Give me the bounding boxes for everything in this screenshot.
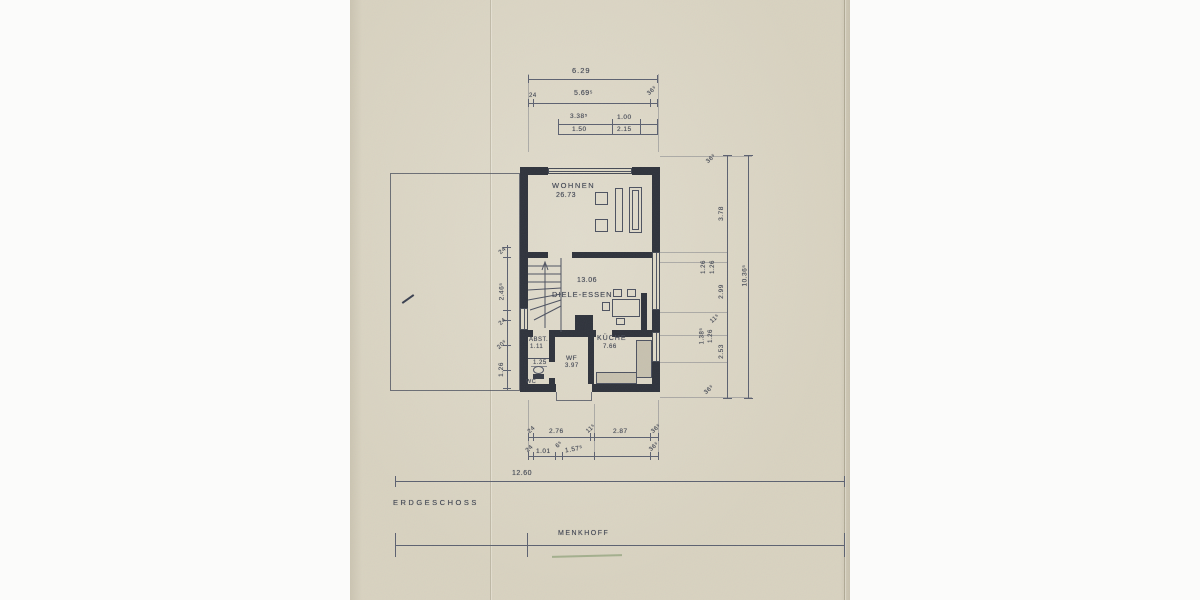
dim-right-299: 2.99 <box>718 284 725 299</box>
dim-right-total: 10.36⁵ <box>741 265 748 287</box>
scan-paper: WOHNEN 26.73 13.06 DIELE-ESSEN ABST. 1.1… <box>350 0 850 600</box>
dim-top-365: 36⁵ <box>646 85 658 97</box>
floor-title: ERDGESCHOSS <box>393 498 479 507</box>
dim-top-total: 6.29 <box>572 66 591 75</box>
paper-edge-line <box>844 0 845 600</box>
dim-top-150: 1.50 <box>572 126 587 133</box>
dim-right-253: 2.53 <box>718 344 725 359</box>
area-abst: 1.11 <box>530 344 543 350</box>
dim-abst-inner <box>531 366 547 367</box>
wall-bottom-left <box>520 384 556 392</box>
kitchen-counter-right <box>636 340 652 378</box>
scanned-floorplan-page: WOHNEN 26.73 13.06 DIELE-ESSEN ABST. 1.1… <box>0 0 1200 600</box>
wall-bottom-right <box>592 384 660 392</box>
wall-interior-b <box>572 252 652 258</box>
dim-right-365-bot: 36⁵ <box>703 384 715 396</box>
dim-overall-width: 12.60 <box>512 470 532 477</box>
dim-top-3385: 3.38⁵ <box>570 113 588 120</box>
dim-line-top-row2 <box>528 103 658 104</box>
dining-chair-2 <box>627 289 636 297</box>
dim-right-115: 11⁵ <box>709 313 721 324</box>
window-kitchen <box>652 332 660 362</box>
dim-line-bottom2 <box>528 456 658 457</box>
dim-top-24: 24 <box>529 93 537 99</box>
dim-right-126a: 1.26 <box>701 260 707 274</box>
entrance-porch <box>556 392 592 401</box>
armchair-1 <box>595 192 608 205</box>
dim-left-2465: 2.46⁵ <box>498 283 505 301</box>
area-wf: 3.97 <box>565 363 579 369</box>
green-underline <box>552 554 622 558</box>
wall-left-upper <box>520 167 528 308</box>
dining-table <box>612 299 640 317</box>
room-label-diele-essen: DIELE-ESSEN <box>552 290 613 299</box>
dim-top-5695: 5.69⁵ <box>574 90 593 97</box>
room-label-wc: WC <box>526 379 536 385</box>
chimney-block <box>575 315 593 332</box>
dining-chair-1 <box>613 289 622 297</box>
dim-line-top-row3 <box>558 124 658 125</box>
door-left <box>520 308 528 330</box>
kitchen-counter-bottom <box>596 372 637 384</box>
dining-chair-4 <box>616 318 625 325</box>
divider-abst-wc <box>528 358 549 359</box>
area-diele: 13.06 <box>577 277 597 284</box>
dim-bot1-287: 2.87 <box>613 428 628 435</box>
dining-chair-3 <box>602 302 610 311</box>
dim-right-1385: 1.38⁵ <box>699 328 705 345</box>
wall-right-mid <box>652 310 660 332</box>
wall-kueche-diele <box>641 293 647 330</box>
dim-right-378: 3.78 <box>718 206 725 221</box>
toilet-bowl <box>533 366 544 374</box>
coffee-table <box>615 188 623 232</box>
dim-line-bottom1 <box>528 437 658 438</box>
wall-wf-kueche <box>588 337 594 384</box>
dim-bot1-365: 36⁵ <box>650 423 662 435</box>
dim-line-top-total <box>528 79 658 80</box>
dim-left-126: 1.26 <box>498 362 505 377</box>
sofa <box>629 187 642 233</box>
wall-abst-wf2 <box>549 378 555 384</box>
room-label-wohnen: WOHNEN <box>552 181 595 190</box>
area-kueche: 7.66 <box>603 344 617 350</box>
dim-bot2-65: 6⁵ <box>555 440 564 449</box>
area-wohnen: 26.73 <box>556 192 576 199</box>
dim-right-126c: 1.26 <box>708 329 714 343</box>
armchair-2 <box>595 219 608 232</box>
dim-top-215: 2.15 <box>617 126 632 133</box>
room-label-abst: ABST. <box>529 337 548 343</box>
architect-name: MENKHOFF <box>558 530 609 537</box>
wall-right-upper <box>652 167 660 252</box>
dim-right-126b: 1.26 <box>710 260 716 274</box>
room-label-wf: WF <box>566 355 577 362</box>
dim-bot1-115: 11⁵ <box>585 423 597 434</box>
wall-abst-wf <box>549 337 555 362</box>
dim-bot1-276: 2.76 <box>549 428 564 435</box>
room-label-kueche: KÜCHE <box>597 335 627 342</box>
dim-top-100: 1.00 <box>617 114 632 121</box>
dim-abst-width: 1.25 <box>533 360 547 366</box>
dim-line-left-chain <box>507 245 508 390</box>
dim-right-365-top: 36⁵ <box>705 153 717 165</box>
dim-bot2-101: 1.01 <box>536 448 551 455</box>
dim-line-overall <box>395 481 845 482</box>
title-block-line <box>395 545 845 546</box>
dim-bot2-1575: 1.57⁵ <box>565 445 584 455</box>
window-living-room <box>548 168 632 174</box>
window-dining <box>652 252 660 310</box>
